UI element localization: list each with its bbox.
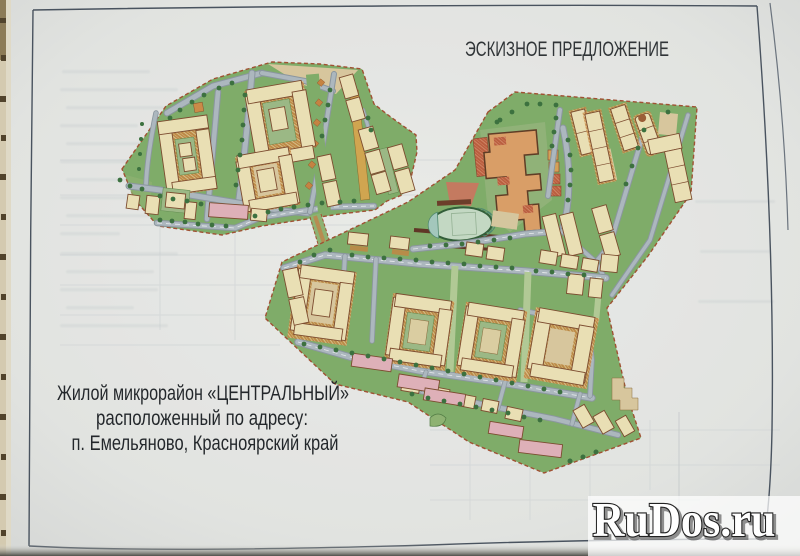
svg-text:RuDos.ru: RuDos.ru: [593, 492, 776, 547]
